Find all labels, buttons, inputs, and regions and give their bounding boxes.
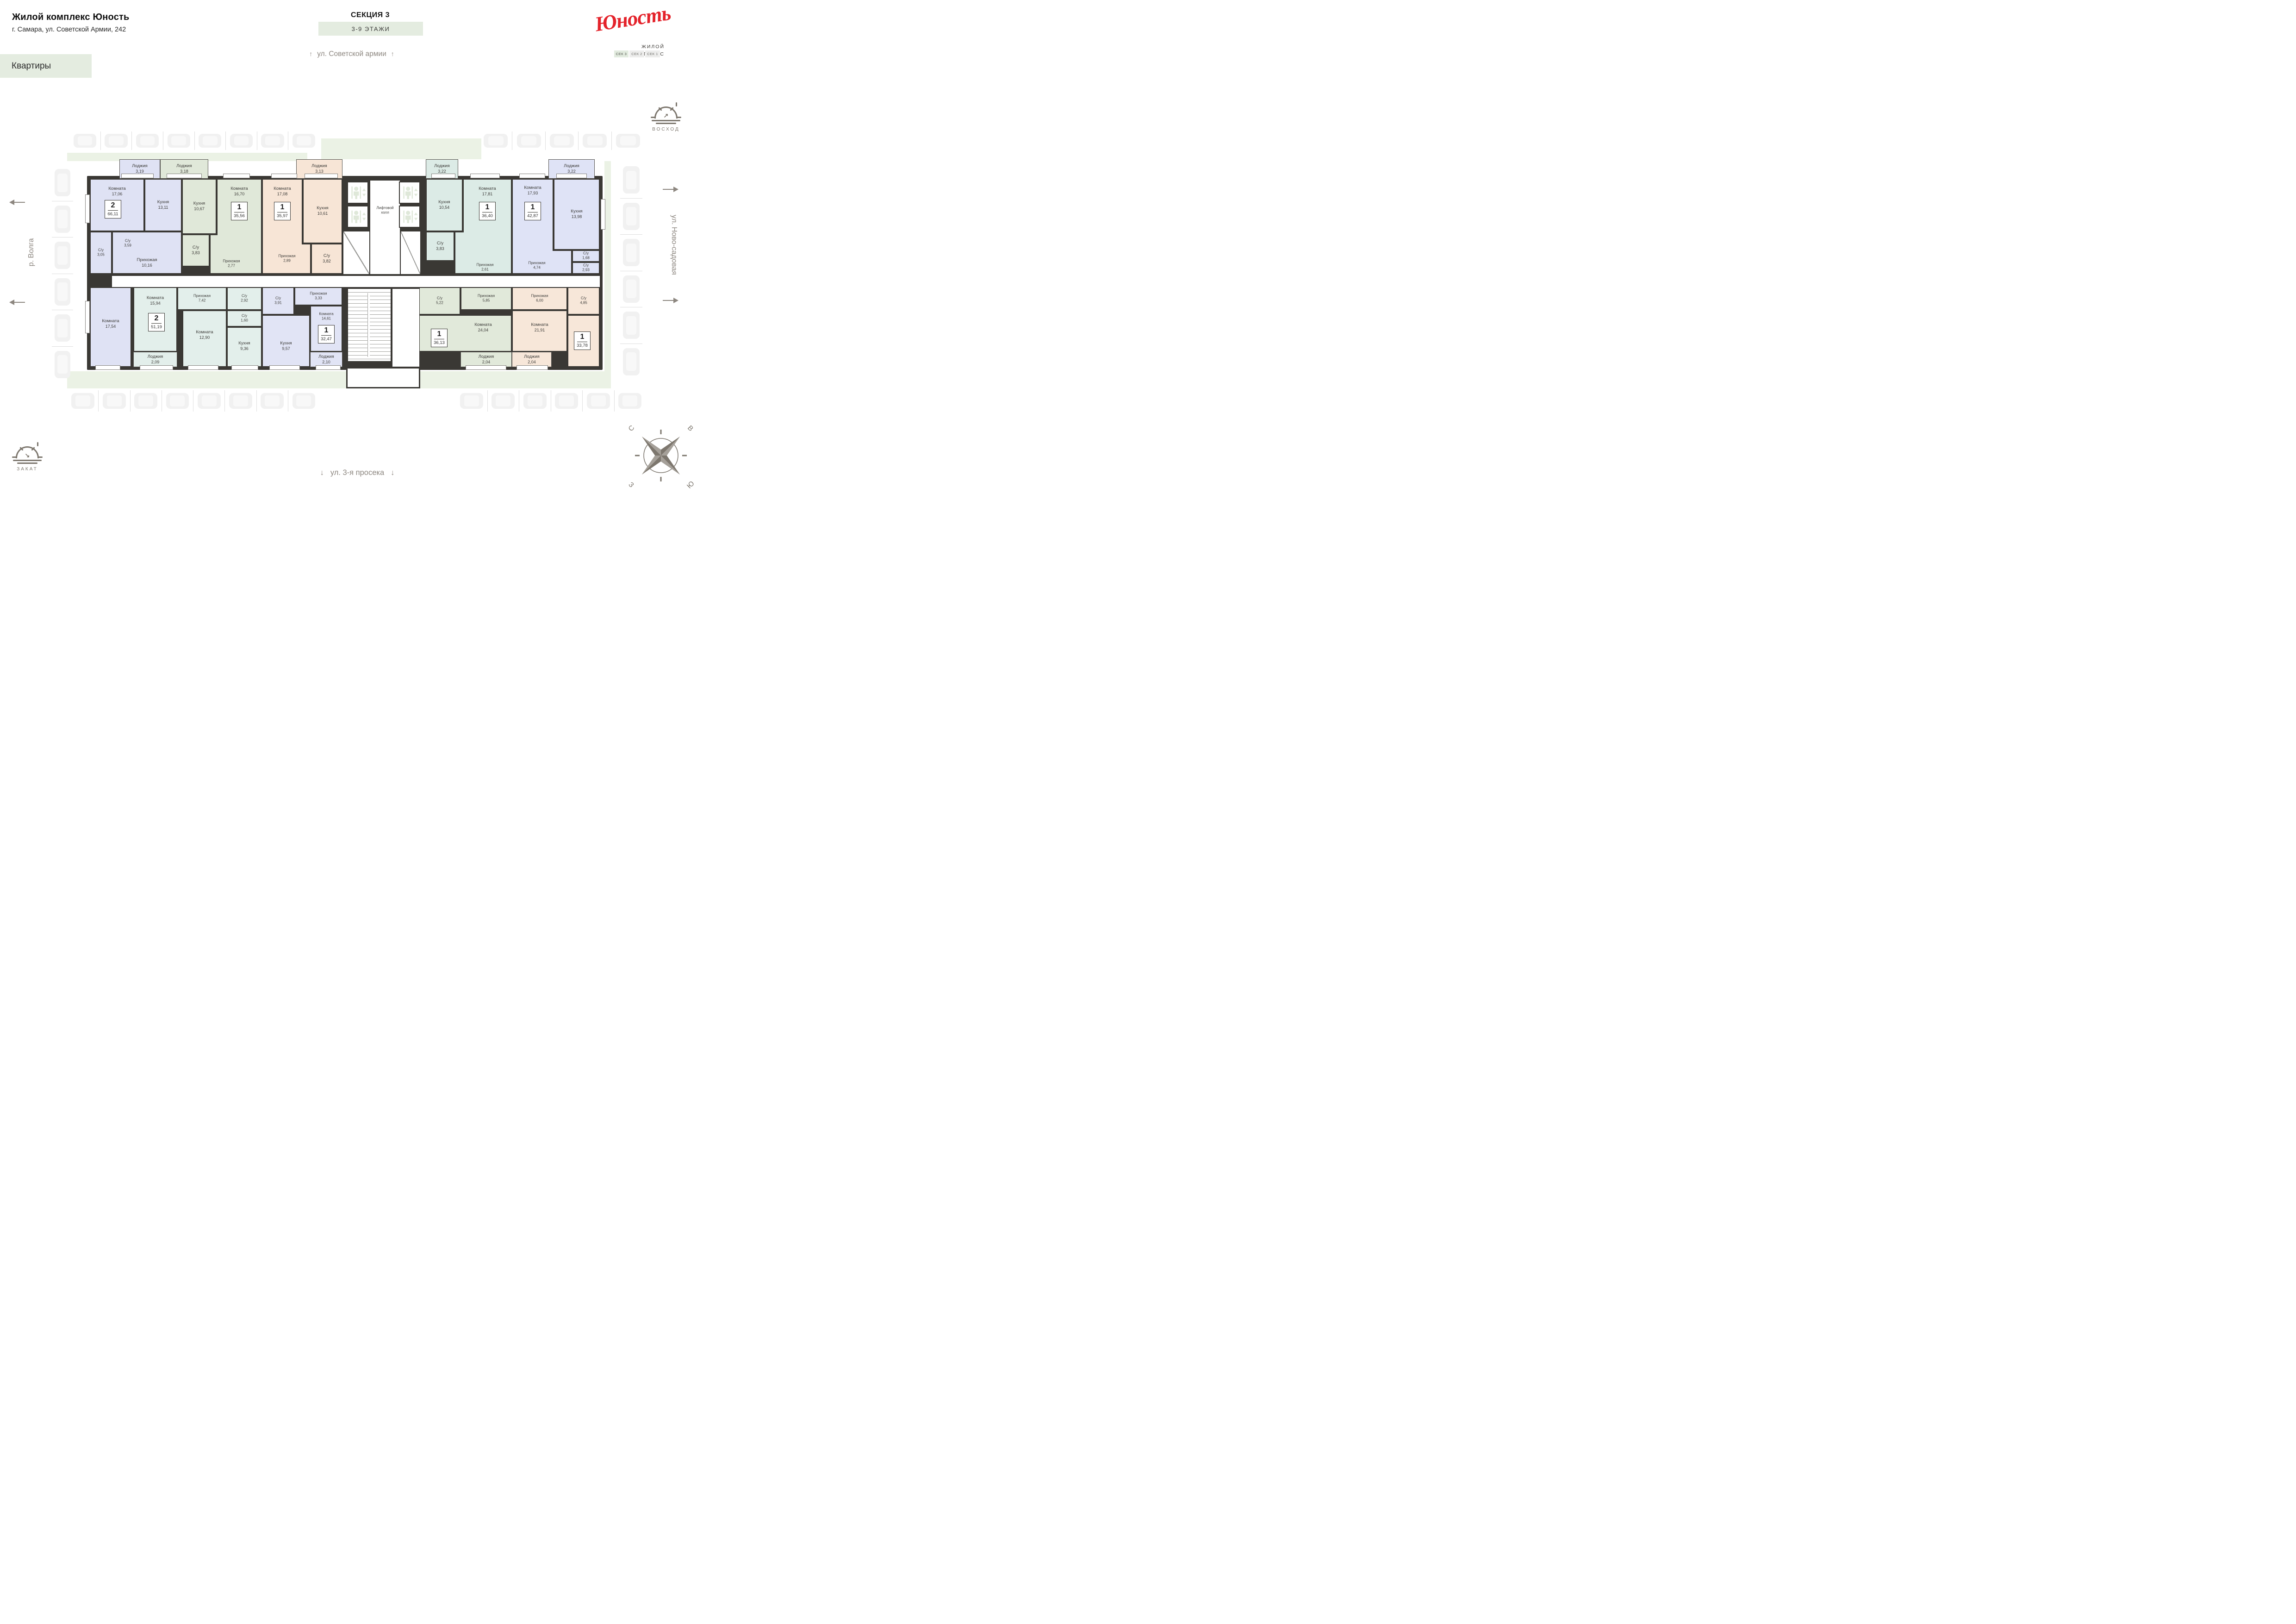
parking-stall [551, 390, 583, 412]
parking-row [620, 162, 642, 380]
room-label: С/у3,83 [436, 241, 444, 252]
window [601, 199, 605, 230]
parking-stall [614, 390, 646, 412]
landscaping-area [321, 138, 481, 159]
car-icon [587, 393, 610, 409]
room-label: С/у4,85 [580, 296, 587, 306]
room-label: С/у1,60 [241, 314, 248, 324]
car-icon [550, 134, 574, 148]
car-icon [134, 393, 157, 409]
parking-stall [163, 131, 194, 150]
room-label: Лоджия3,22 [564, 163, 579, 175]
window [470, 174, 500, 178]
room-label: Кухня13,11 [157, 200, 169, 211]
elevator-icon [347, 181, 368, 204]
apartment-badge-a9[interactable]: 133,78 [574, 331, 591, 350]
car-icon [555, 393, 578, 409]
room-label: С/у3,82 [323, 253, 331, 264]
car-icon [71, 393, 94, 409]
floor-plan: Лифтовойхолл266,11135,56135,97136,40142,… [0, 0, 689, 487]
apartment-badge-a8[interactable]: 136,13 [431, 329, 448, 347]
parking-row [456, 390, 646, 412]
parking-stall [225, 131, 257, 150]
corridor [112, 276, 600, 287]
parking-stall [256, 390, 288, 412]
room-label: Прихожая3,33 [310, 292, 327, 301]
window [85, 194, 90, 223]
window [269, 365, 300, 370]
car-icon [623, 312, 640, 339]
apartment-badge-a3[interactable]: 135,97 [274, 202, 291, 220]
parking-stall [257, 131, 288, 150]
car-icon [199, 134, 221, 148]
parking-row [52, 165, 73, 382]
room-label: Лоджия3,18 [176, 163, 192, 175]
room-label: Комната16,70 [230, 186, 248, 197]
window [95, 365, 120, 370]
parking-stall [52, 274, 73, 310]
car-icon [583, 134, 607, 148]
car-icon [292, 393, 316, 409]
elevator-icon [399, 181, 420, 204]
room-label: С/у3,59 [124, 239, 131, 249]
room-label: Кухня10,61 [317, 206, 328, 217]
room-label: Лоджия3,19 [132, 163, 148, 175]
parking-stall [194, 131, 226, 150]
room-label: Прихожая5,85 [478, 294, 495, 304]
parking-stall [162, 390, 193, 412]
parking-stall [519, 390, 551, 412]
room-label: Комната15,94 [147, 295, 164, 306]
room-label: Комната17,81 [479, 186, 496, 197]
parking-stall [479, 131, 512, 150]
window [85, 301, 90, 333]
parking-stall [130, 390, 162, 412]
car-icon [492, 393, 515, 409]
car-icon [261, 393, 284, 409]
parking-stall [100, 131, 132, 150]
parking-stall [582, 390, 614, 412]
room-label: Лоджия2,04 [524, 354, 540, 365]
room-label: Лоджия2,10 [318, 354, 334, 365]
parking-stall [193, 390, 224, 412]
parking-stall [98, 390, 130, 412]
car-icon [623, 166, 640, 194]
parking-stall [52, 201, 73, 237]
room-label: С/у3,05 [97, 248, 105, 258]
apartment-badge-a2[interactable]: 135,56 [231, 202, 248, 220]
elevator-icon [399, 206, 420, 228]
room-label: Прихожая4,74 [528, 261, 545, 271]
room-label: Кухня10,67 [193, 201, 205, 212]
parking-stall [52, 310, 73, 346]
apartment-badge-a7[interactable]: 132,47 [318, 325, 335, 344]
car-icon [523, 393, 547, 409]
room-label: Прихожая2,77 [223, 259, 240, 269]
car-icon [618, 393, 641, 409]
room-label: С/у1,68 [582, 251, 590, 261]
parking-row [479, 131, 644, 150]
parking-stall [224, 390, 256, 412]
car-icon [517, 134, 541, 148]
apartment-badge-a1[interactable]: 266,11 [105, 200, 121, 219]
parking-stall [620, 344, 642, 380]
room-label: Лоджия3,22 [434, 163, 450, 175]
car-icon [55, 242, 70, 269]
car-icon [616, 134, 640, 148]
window [316, 365, 341, 370]
car-icon [292, 134, 315, 148]
window [188, 365, 218, 370]
landscaping-area [67, 371, 611, 388]
car-icon [168, 134, 190, 148]
room-label: С/у2,93 [582, 263, 590, 273]
parking-stall [288, 131, 319, 150]
car-icon [55, 169, 70, 196]
car-icon [623, 203, 640, 230]
car-icon [623, 348, 640, 375]
hall [370, 181, 400, 274]
room-label: Кухня9,57 [280, 341, 292, 352]
car-icon [623, 275, 640, 303]
parking-stall [620, 307, 642, 344]
stairs [348, 289, 391, 361]
car-icon [166, 393, 189, 409]
room-label: Прихожая7,42 [193, 294, 211, 304]
parking-stall [52, 237, 73, 274]
parking-stall [67, 390, 98, 412]
apartment-badge-a6[interactable]: 251,19 [148, 313, 165, 331]
room-label: Кухня9,36 [238, 341, 250, 352]
room-label: Кухня13,98 [571, 209, 582, 220]
parking-stall [620, 198, 642, 235]
car-icon [55, 351, 70, 378]
car-icon [74, 134, 96, 148]
room-label: Кухня10,54 [438, 200, 450, 211]
window [271, 174, 297, 178]
room-label: С/у3,91 [274, 296, 282, 306]
car-icon [55, 314, 70, 342]
parking-stall [620, 271, 642, 307]
room-label: С/у5,22 [436, 296, 443, 306]
parking-stall [52, 346, 73, 383]
shaft [343, 231, 369, 274]
room-label: Лоджия2,04 [479, 354, 494, 365]
car-icon [623, 239, 640, 266]
room-label: С/у3,83 [192, 245, 200, 256]
parking-stall [288, 390, 319, 412]
car-icon [103, 393, 126, 409]
landscaping-area [604, 161, 611, 372]
room-label: Прихожая6,00 [531, 294, 548, 304]
car-icon [198, 393, 221, 409]
room-label: Лифтовойхолл [376, 206, 393, 216]
shaft [401, 231, 420, 274]
parking-stall [52, 165, 73, 201]
parking-stall [578, 131, 611, 150]
room-label: Прихожая10,16 [137, 257, 157, 269]
parking-stall [611, 131, 644, 150]
room-label: Комната24,04 [474, 322, 492, 333]
window [466, 365, 506, 370]
car-icon [105, 134, 127, 148]
parking-row [67, 390, 319, 412]
room-label: Комната17,06 [108, 186, 125, 197]
car-icon [136, 134, 159, 148]
car-icon [261, 134, 284, 148]
vestibule [346, 367, 420, 388]
car-icon [55, 206, 70, 233]
corridor [392, 289, 419, 367]
window [140, 365, 173, 370]
room-label: Комната14,61 [319, 312, 333, 322]
car-icon [229, 393, 252, 409]
window [223, 174, 250, 178]
room-label: Комната12,90 [196, 330, 213, 341]
room-label: Лоджия2,09 [148, 354, 163, 365]
parking-row [69, 131, 319, 150]
room-label: Комната21,91 [531, 322, 548, 333]
room-label: Прихожая2,89 [278, 254, 295, 264]
window [519, 174, 545, 178]
room-label: Прихожая2,61 [476, 263, 493, 273]
parking-stall [545, 131, 578, 150]
room-label: Комната17,54 [102, 319, 119, 330]
elevator-icon [347, 206, 368, 228]
car-icon [460, 393, 483, 409]
window [516, 365, 548, 370]
room-label: Комната17,93 [524, 185, 541, 196]
car-icon [55, 278, 70, 306]
parking-stall [69, 131, 100, 150]
room-label: Комната17,08 [274, 186, 291, 197]
room-label: Лоджия3,13 [311, 163, 327, 175]
parking-stall [131, 131, 163, 150]
parking-stall [620, 234, 642, 271]
parking-stall [620, 162, 642, 198]
parking-stall [512, 131, 545, 150]
room-label: С/у2,92 [241, 294, 248, 304]
apartment-badge-a5[interactable]: 142,87 [524, 202, 541, 220]
apartment-badge-a4[interactable]: 136,40 [479, 202, 496, 220]
car-icon [230, 134, 253, 148]
window [231, 365, 258, 370]
parking-stall [487, 390, 519, 412]
parking-stall [456, 390, 487, 412]
car-icon [484, 134, 508, 148]
